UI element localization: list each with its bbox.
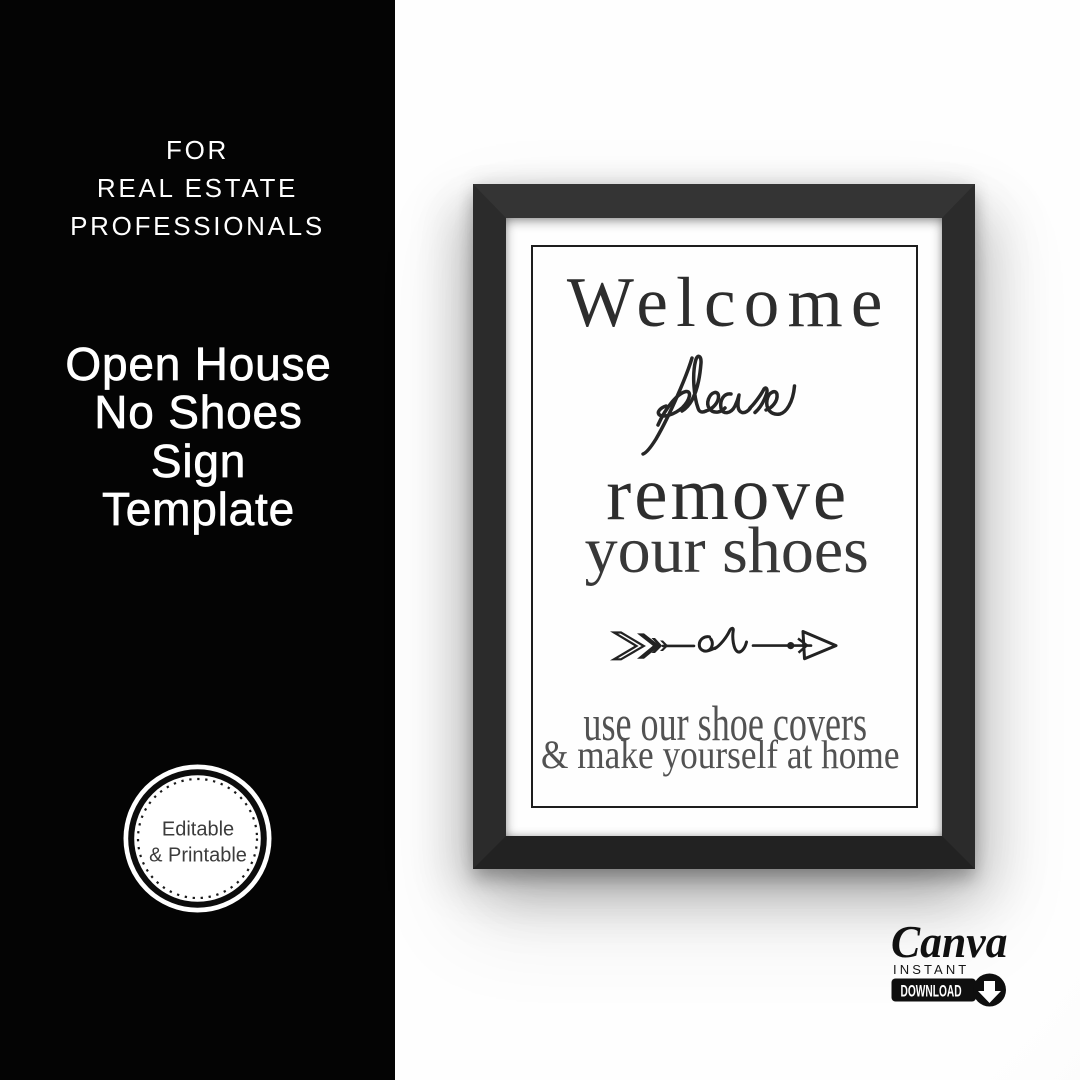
svg-text:Canva: Canva (891, 916, 1008, 967)
svg-text:DOWNLOAD: DOWNLOAD (901, 981, 962, 1000)
svg-text:Editable: Editable (162, 819, 234, 841)
svg-text:& Printable: & Printable (149, 845, 247, 867)
